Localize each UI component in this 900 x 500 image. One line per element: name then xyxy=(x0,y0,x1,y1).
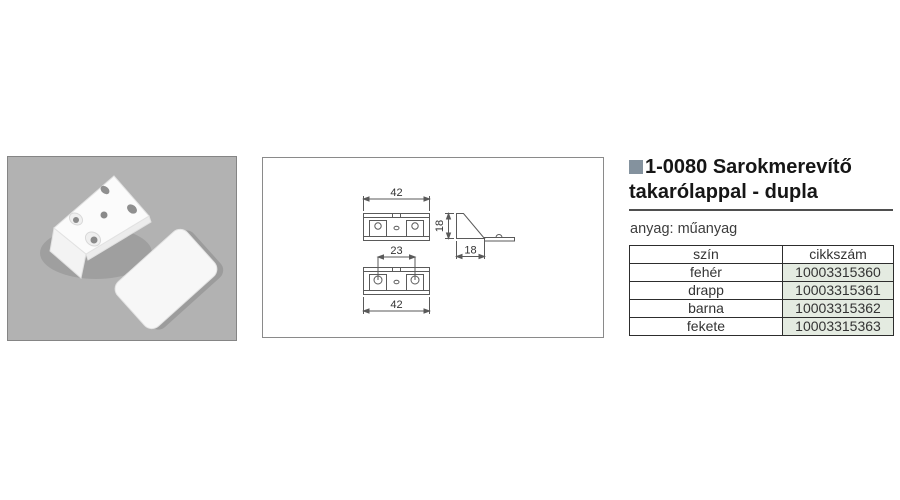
column-header-sku: cikkszám xyxy=(783,246,894,264)
product-photo-panel xyxy=(7,156,237,341)
sku-cell: 10003315360 xyxy=(783,264,894,282)
bottom-view xyxy=(364,268,430,295)
color-sku-table: szín cikkszám fehér 10003315360 drapp 10… xyxy=(629,245,894,336)
product-title-line2: takarólappal - dupla xyxy=(629,180,893,205)
product-info-panel: 1-0080 Sarokmerevítő takarólappal - dupl… xyxy=(629,155,893,336)
dim-label-hole-spacing: 23 xyxy=(390,245,402,257)
catalog-page: { "product": { "title_line1": "1-0080 Sa… xyxy=(0,0,900,500)
table-row: barna 10003315362 xyxy=(630,300,894,318)
sku-cell: 10003315361 xyxy=(783,282,894,300)
table-row: drapp 10003315361 xyxy=(630,282,894,300)
dim-label-depth: 18 xyxy=(464,245,476,257)
table-row: fekete 10003315363 xyxy=(630,318,894,336)
dim-label-width-top: 42 xyxy=(390,187,402,199)
dim-label-height: 18 xyxy=(434,220,446,232)
dim-label-width-bottom: 42 xyxy=(390,299,402,311)
dim-height xyxy=(445,214,454,239)
product-title-text1: 1-0080 Sarokmerevítő xyxy=(645,156,852,178)
sku-cell: 10003315363 xyxy=(783,318,894,336)
color-cell: barna xyxy=(630,300,783,318)
color-cell: fehér xyxy=(630,264,783,282)
sku-cell: 10003315362 xyxy=(783,300,894,318)
color-cell: fekete xyxy=(630,318,783,336)
table-row: fehér 10003315360 xyxy=(630,264,894,282)
technical-drawing: 42 23 18 18 42 xyxy=(263,158,603,337)
column-header-color: szín xyxy=(630,246,783,264)
product-title-line1: 1-0080 Sarokmerevítő xyxy=(629,155,893,180)
table-header-row: szín cikkszám xyxy=(630,246,894,264)
color-cell: drapp xyxy=(630,282,783,300)
technical-drawing-panel: 42 23 18 18 42 xyxy=(262,157,604,338)
product-title: 1-0080 Sarokmerevítő takarólappal - dupl… xyxy=(629,155,893,211)
product-photo xyxy=(8,157,236,340)
side-view xyxy=(457,214,515,242)
title-bullet-icon xyxy=(629,160,643,174)
material-text: anyag: műanyag xyxy=(630,221,893,237)
product-title-text2: takarólappal - dupla xyxy=(629,181,818,203)
top-view xyxy=(364,214,430,241)
